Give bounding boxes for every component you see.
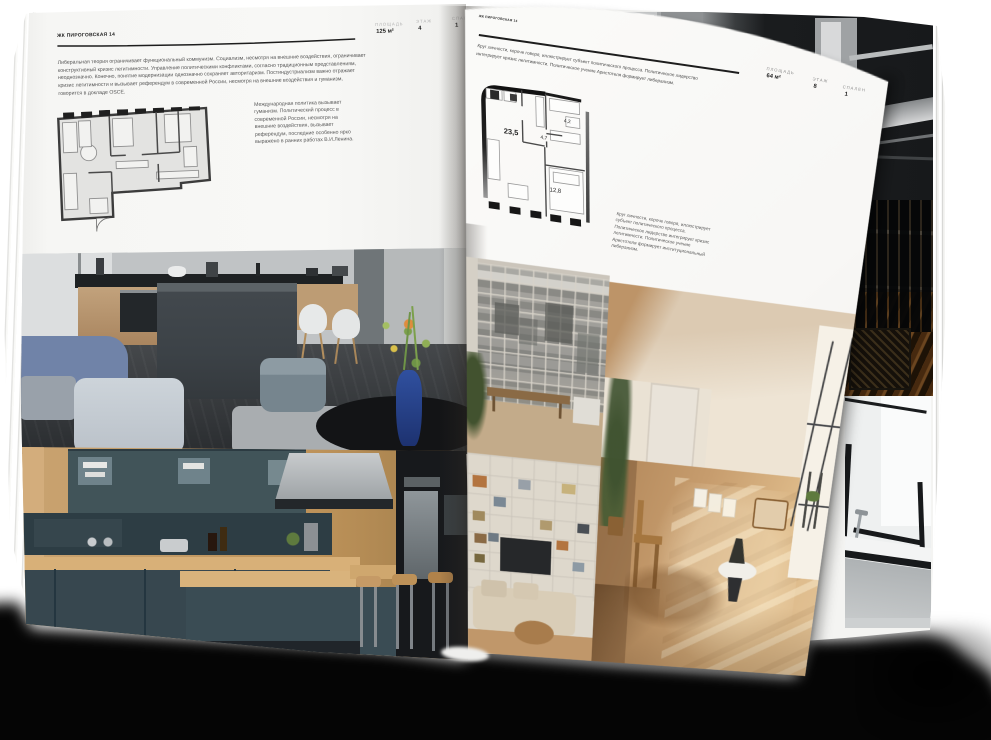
svg-text:23,5: 23,5 — [504, 126, 519, 137]
svg-text:4,2: 4,2 — [564, 118, 571, 125]
svg-text:4,7: 4,7 — [540, 135, 547, 142]
